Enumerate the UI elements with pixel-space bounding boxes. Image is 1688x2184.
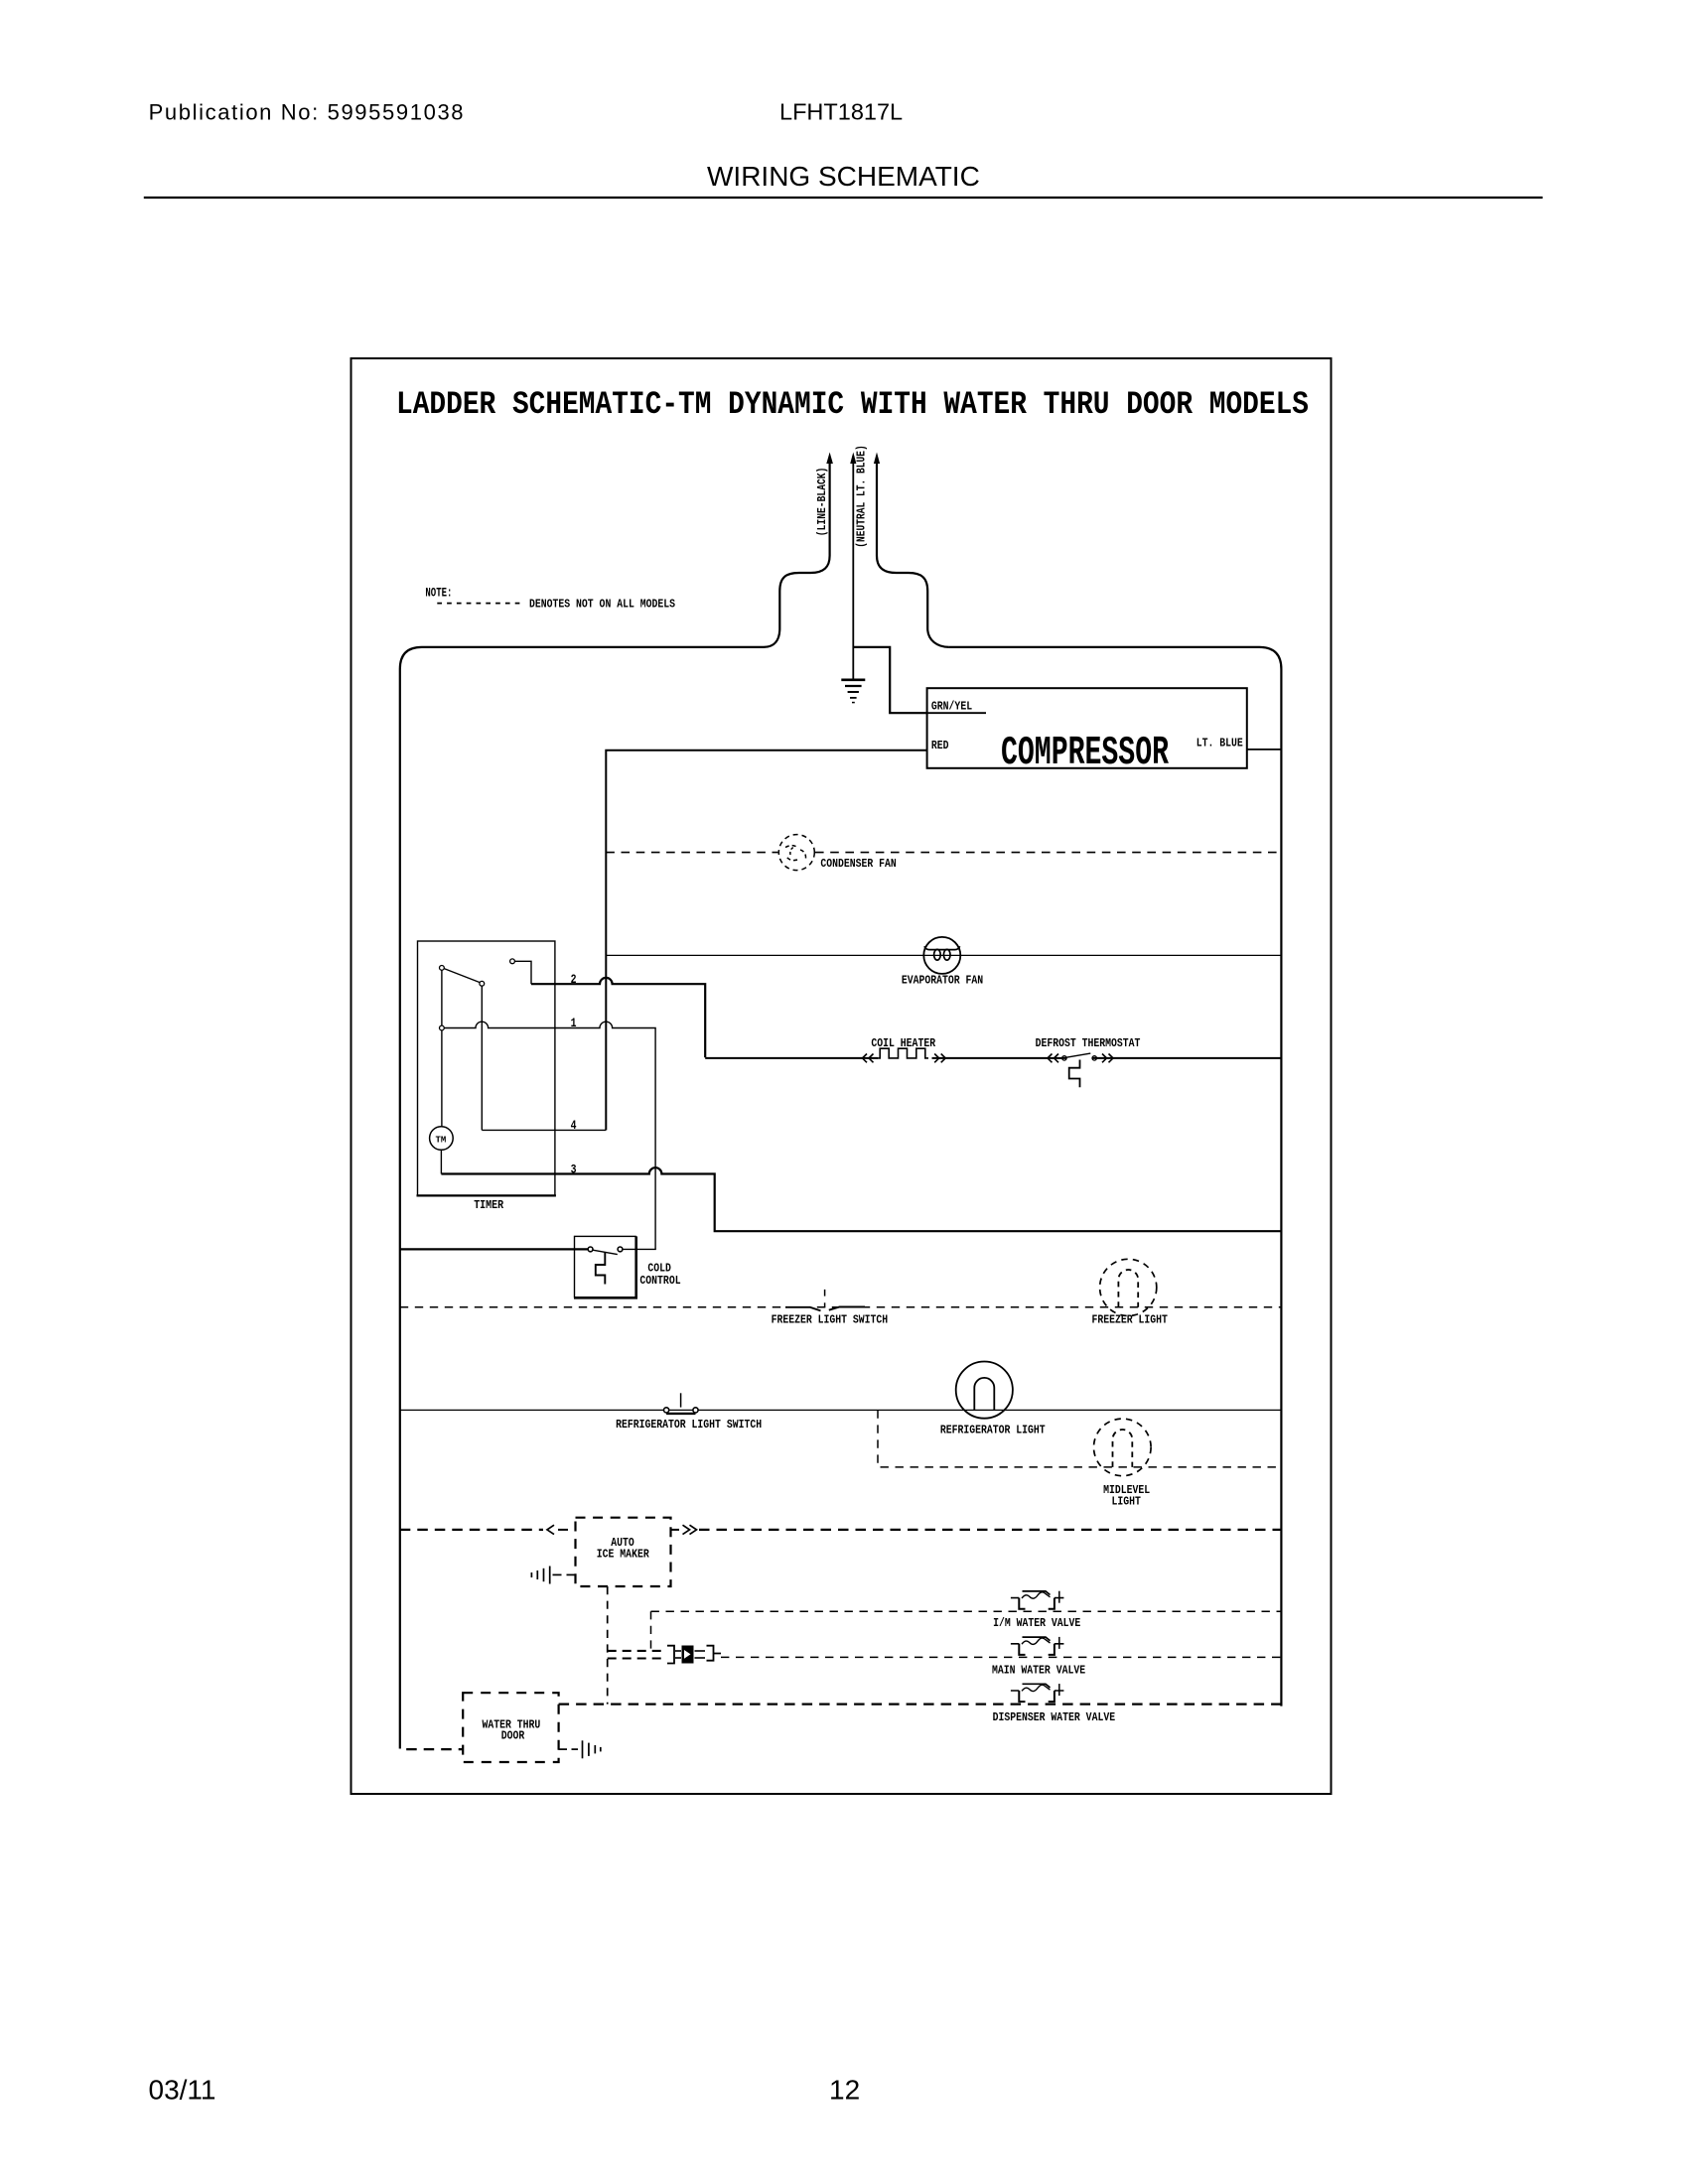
svg-text:TM: TM: [436, 1136, 447, 1146]
svg-text:Publication No: 5995591038: Publication No: 5995591038: [149, 100, 466, 125]
svg-text:ICE MAKER: ICE MAKER: [597, 1547, 650, 1561]
svg-text:(LINE-BLACK): (LINE-BLACK): [815, 468, 829, 537]
svg-text:DEFROST THERMOSTAT: DEFROST THERMOSTAT: [1036, 1036, 1141, 1050]
svg-text:REFRIGERATOR LIGHT SWITCH: REFRIGERATOR LIGHT SWITCH: [616, 1418, 762, 1432]
svg-text:FREEZER LIGHT SWITCH: FREEZER LIGHT SWITCH: [772, 1312, 889, 1326]
svg-text:DISPENSER WATER VALVE: DISPENSER WATER VALVE: [993, 1710, 1116, 1724]
svg-text:(NEUTRAL LT. BLUE): (NEUTRAL LT. BLUE): [855, 445, 869, 548]
svg-text:GRN/YEL: GRN/YEL: [931, 699, 972, 713]
svg-text:TIMER: TIMER: [474, 1198, 504, 1212]
svg-text:MAIN WATER VALVE: MAIN WATER VALVE: [992, 1664, 1085, 1678]
svg-text:WIRING SCHEMATIC: WIRING SCHEMATIC: [707, 161, 980, 192]
svg-text:LT. BLUE: LT. BLUE: [1196, 737, 1243, 751]
svg-text:REFRIGERATOR LIGHT: REFRIGERATOR LIGHT: [940, 1424, 1046, 1437]
svg-text:COMPRESSOR: COMPRESSOR: [1001, 731, 1169, 776]
svg-text:03/11: 03/11: [149, 2075, 216, 2106]
svg-text:I/M WATER VALVE: I/M WATER VALVE: [993, 1616, 1080, 1630]
svg-text:CONTROL: CONTROL: [639, 1274, 680, 1288]
svg-text:RED: RED: [931, 739, 949, 752]
svg-text:12: 12: [829, 2075, 860, 2106]
svg-text:LADDER SCHEMATIC-TM DYNAMIC WI: LADDER SCHEMATIC-TM DYNAMIC WITH WATER T…: [396, 386, 1309, 423]
svg-text:CONDENSER FAN: CONDENSER FAN: [820, 857, 896, 871]
svg-text:LIGHT: LIGHT: [1112, 1494, 1141, 1508]
svg-text:FREEZER LIGHT: FREEZER LIGHT: [1092, 1313, 1168, 1327]
svg-text:NOTE:: NOTE:: [425, 585, 452, 600]
svg-text:LFHT1817L: LFHT1817L: [779, 99, 903, 125]
svg-text:EVAPORATOR FAN: EVAPORATOR FAN: [902, 973, 983, 987]
svg-text:DOOR: DOOR: [501, 1729, 525, 1743]
svg-text:DENOTES NOT ON ALL MODELS: DENOTES NOT ON ALL MODELS: [529, 597, 675, 611]
